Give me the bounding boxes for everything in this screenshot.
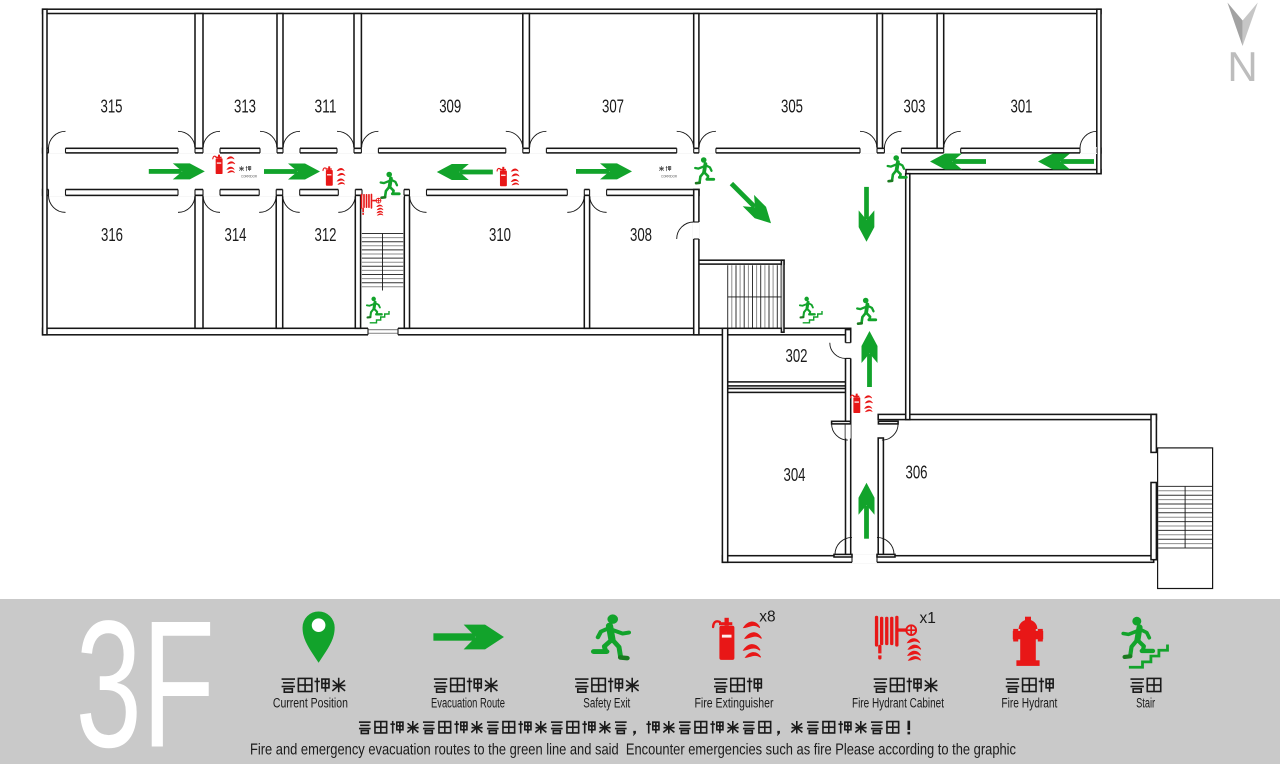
svg-text:Safety Exit: Safety Exit [583, 696, 630, 711]
svg-text:x1: x1 [920, 610, 936, 627]
svg-text:304: 304 [784, 465, 806, 485]
svg-text:309: 309 [439, 97, 461, 117]
svg-text:N: N [1227, 43, 1257, 90]
svg-text:313: 313 [234, 97, 256, 117]
svg-text:312: 312 [315, 225, 337, 245]
svg-text:Fire Extinguisher: Fire Extinguisher [695, 696, 774, 711]
svg-text:310: 310 [489, 225, 511, 245]
svg-text:Evacuation Route: Evacuation Route [431, 696, 505, 711]
svg-text:302: 302 [786, 346, 808, 366]
svg-text:315: 315 [101, 97, 123, 117]
svg-text:311: 311 [315, 97, 337, 117]
svg-text:Stair: Stair [1136, 696, 1155, 711]
svg-text:Fire Hydrant: Fire Hydrant [1001, 696, 1057, 711]
svg-text:Fire Hydrant Cabinet: Fire Hydrant Cabinet [852, 696, 944, 711]
svg-text:CORRIDOR: CORRIDOR [661, 174, 677, 178]
svg-text:Fire and emergency evacuation: Fire and emergency evacuation routes to … [250, 742, 1016, 759]
svg-text:316: 316 [101, 225, 123, 245]
svg-text:3F: 3F [76, 584, 215, 764]
svg-text:303: 303 [904, 97, 926, 117]
svg-text:CORRIDOR: CORRIDOR [241, 174, 257, 178]
svg-text:305: 305 [781, 97, 803, 117]
svg-text:301: 301 [1011, 97, 1033, 117]
svg-text:Current Position: Current Position [273, 696, 348, 711]
svg-text:306: 306 [906, 463, 928, 483]
svg-text:307: 307 [602, 97, 624, 117]
svg-text:314: 314 [225, 225, 247, 245]
svg-text:x8: x8 [759, 609, 775, 626]
svg-text:308: 308 [630, 225, 652, 245]
